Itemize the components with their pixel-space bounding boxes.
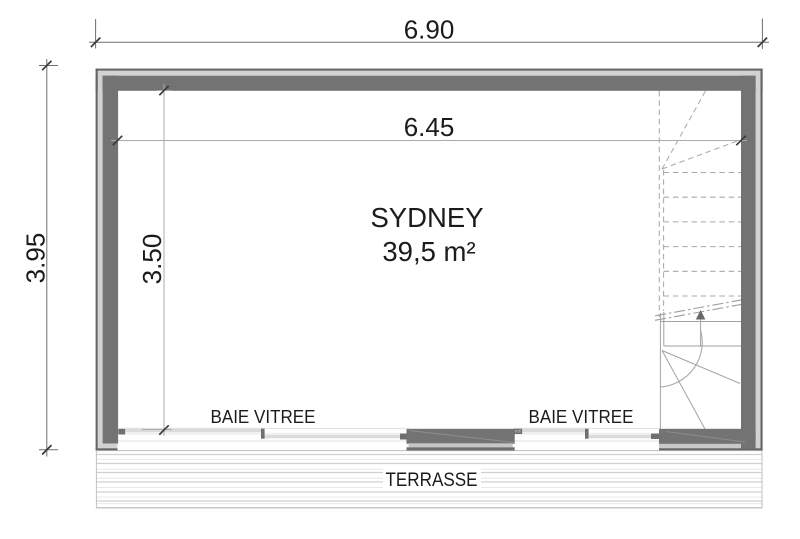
svg-text:3.50: 3.50 (137, 234, 167, 285)
svg-text:6.90: 6.90 (404, 15, 455, 45)
svg-text:TERRASSE: TERRASSE (386, 469, 478, 491)
svg-text:BAIE VITREE: BAIE VITREE (211, 407, 316, 427)
svg-text:BAIE VITREE: BAIE VITREE (529, 407, 634, 427)
svg-text:6.45: 6.45 (404, 112, 455, 142)
svg-text:SYDNEY: SYDNEY (370, 202, 483, 233)
svg-text:39,5 m²: 39,5 m² (382, 236, 475, 267)
svg-text:3.95: 3.95 (21, 233, 51, 284)
